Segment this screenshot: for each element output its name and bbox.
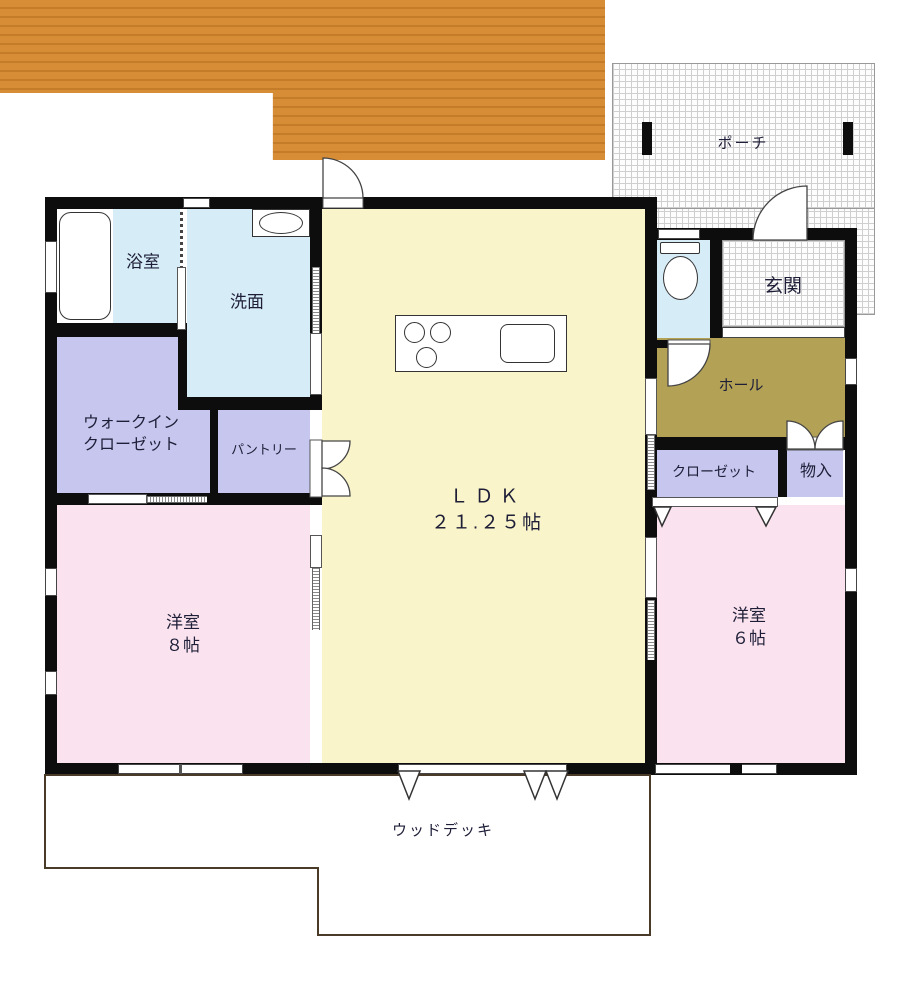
storage-label: 物入 bbox=[800, 461, 832, 483]
entrance-label: 玄関 bbox=[764, 274, 802, 300]
washroom-label: 洗面 bbox=[230, 292, 264, 315]
closet-bifold-left bbox=[654, 507, 671, 526]
pantry-door-opening bbox=[310, 440, 322, 497]
walk-in-closet-label: ウォークイン クローゼット bbox=[83, 412, 179, 455]
ldk-label: ＬＤＫ ２１.２５帖 bbox=[431, 484, 543, 535]
entrance-door-arc bbox=[753, 186, 807, 240]
bedroom8-label: 洋室 ８帖 bbox=[166, 612, 200, 658]
pantry-label: パントリー bbox=[231, 441, 297, 459]
pantry-door-arc-top bbox=[322, 441, 350, 469]
deck-door-swing-2 bbox=[524, 771, 546, 799]
floor-plan: ポーチ 浴室 洗面 玄関 ホール ウォークイン クローゼット パントリー クロー… bbox=[0, 0, 908, 1000]
deck-door-swing-3 bbox=[546, 771, 568, 799]
closet-label: クローゼット bbox=[672, 463, 756, 482]
wood-deck-outline bbox=[45, 775, 650, 935]
closet-bifold-right bbox=[756, 507, 776, 526]
pantry-door-arc-bottom bbox=[322, 468, 350, 496]
toilet-door-arc bbox=[668, 344, 710, 386]
hall-label: ホール bbox=[718, 376, 763, 396]
deck-door-swing-1 bbox=[398, 771, 420, 799]
back-door-opening bbox=[323, 198, 363, 208]
bathroom-label: 浴室 bbox=[126, 252, 160, 275]
storage-door-arc-right bbox=[815, 421, 843, 449]
storage-door-arc-left bbox=[787, 421, 815, 449]
bedroom6-label: 洋室 ６帖 bbox=[732, 605, 766, 651]
wood-deck-label: ウッドデッキ bbox=[392, 821, 494, 841]
porch-label: ポーチ bbox=[717, 134, 768, 154]
back-door-arc bbox=[323, 158, 363, 198]
